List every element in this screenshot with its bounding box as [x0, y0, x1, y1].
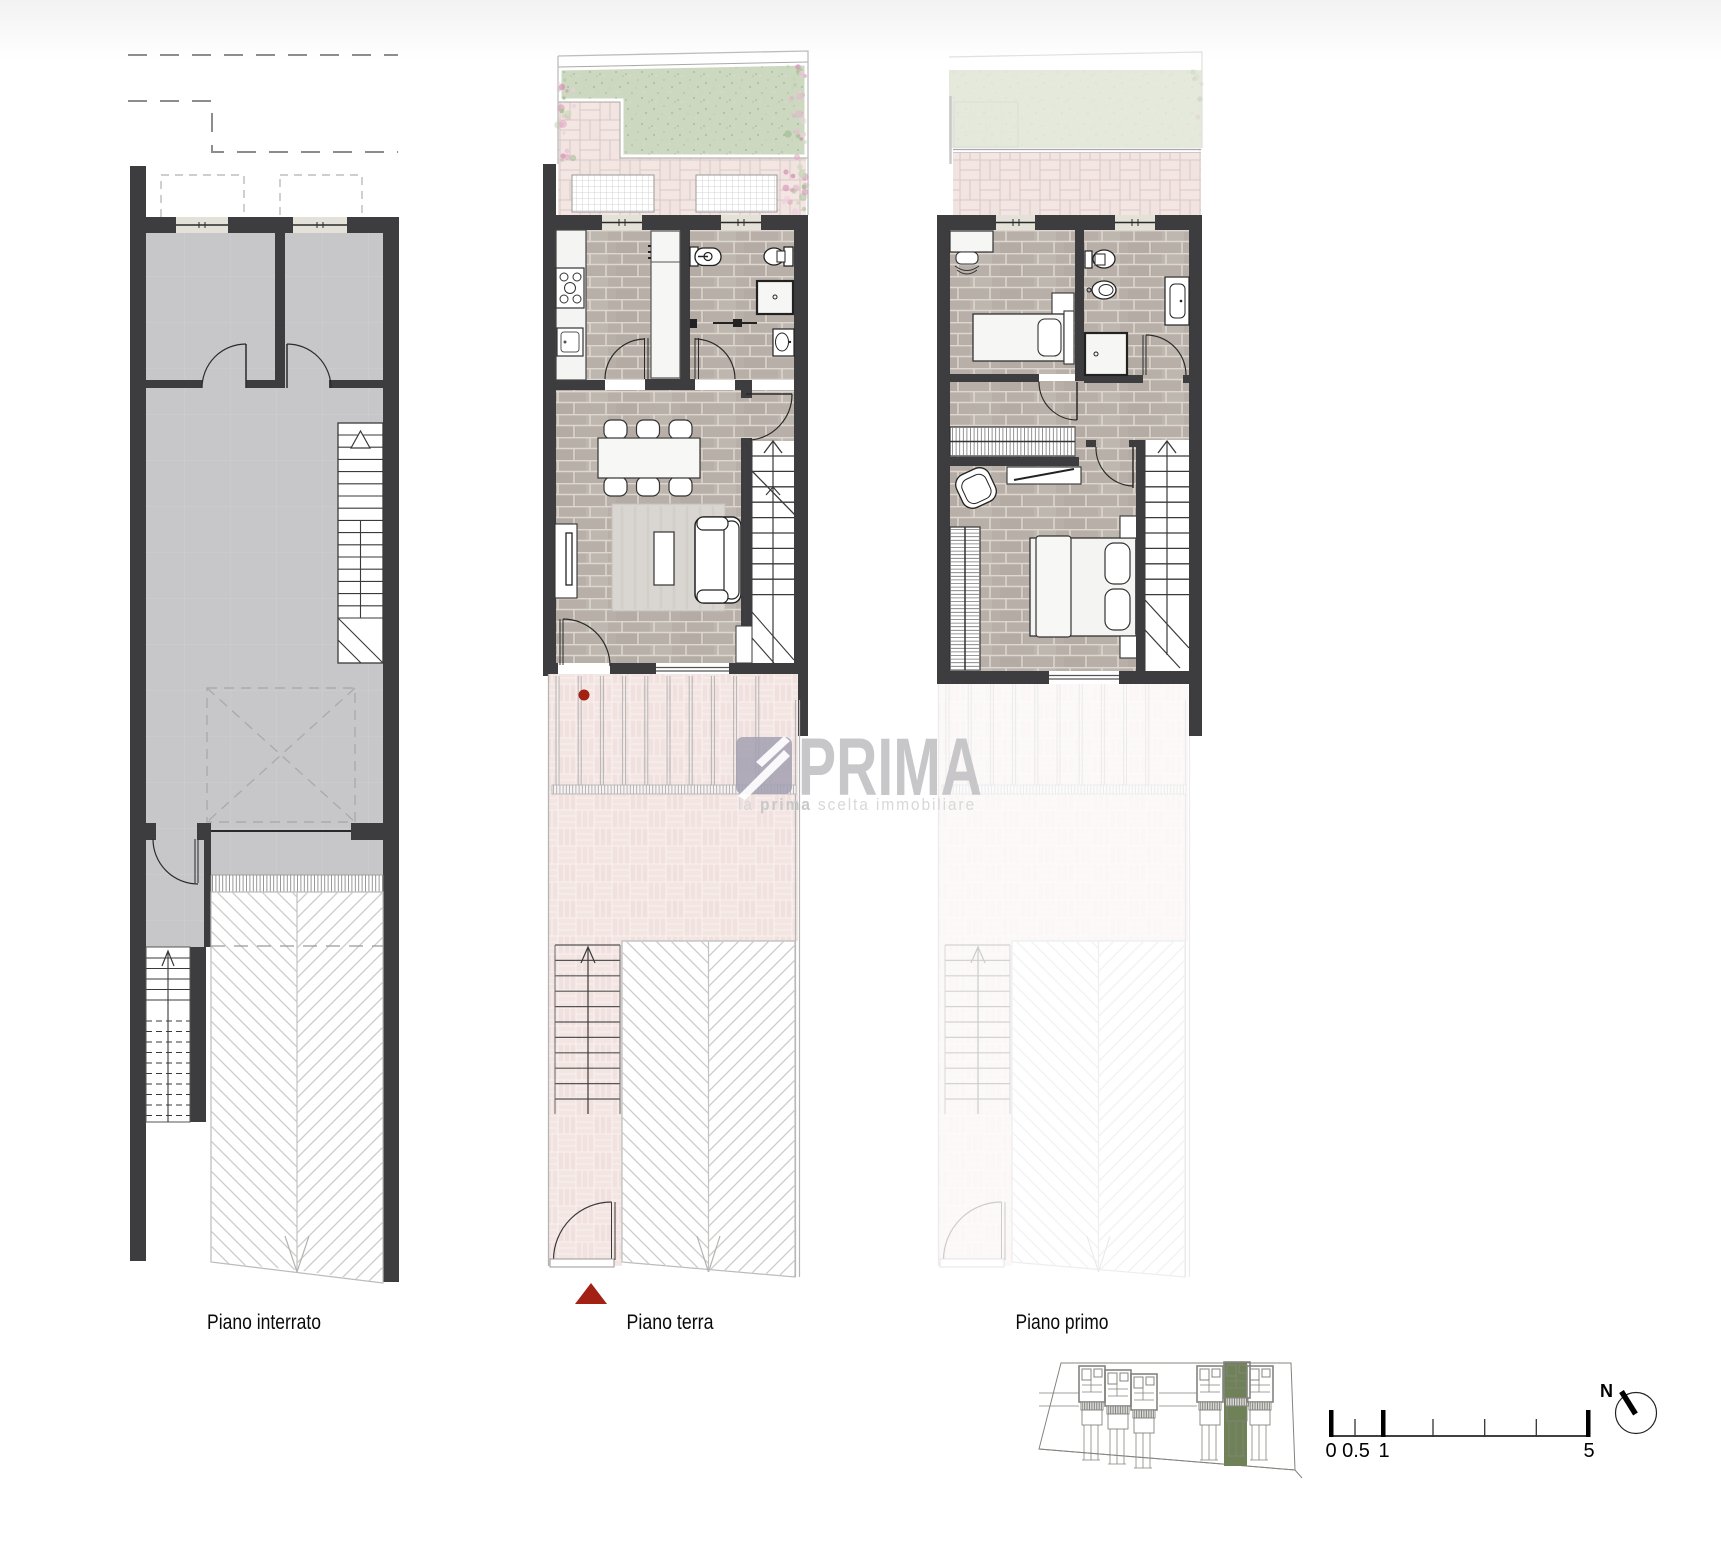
svg-text:Piano terra: Piano terra	[627, 1311, 714, 1334]
svg-text:Piano primo: Piano primo	[1016, 1311, 1109, 1334]
svg-text:Piano interrato: Piano interrato	[207, 1311, 321, 1334]
svg-text:0: 0	[1325, 1440, 1336, 1462]
svg-text:0.5: 0.5	[1342, 1440, 1370, 1462]
svg-text:N: N	[1600, 1381, 1613, 1401]
svg-text:1: 1	[1378, 1440, 1389, 1462]
svg-text:5: 5	[1583, 1440, 1594, 1462]
svg-text:la prima scelta immobiliare: la prima scelta immobiliare	[738, 795, 976, 814]
